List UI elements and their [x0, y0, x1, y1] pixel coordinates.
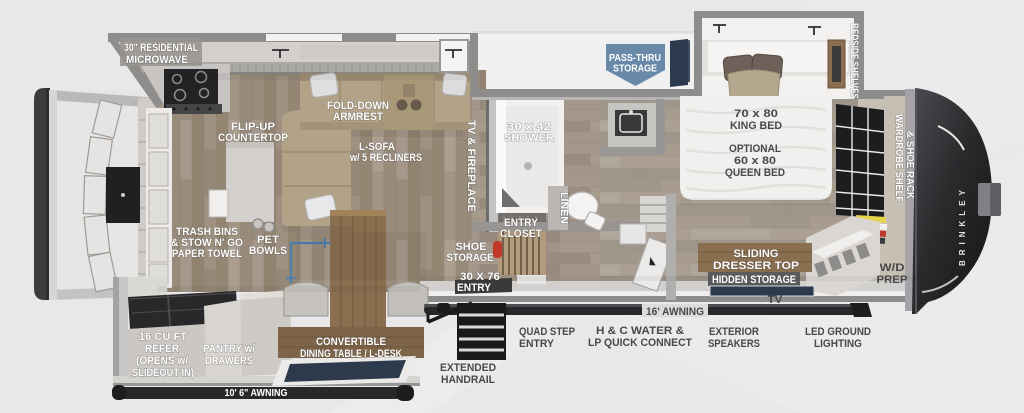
svg-text:CLOSET: CLOSET — [500, 228, 542, 240]
svg-text:10' 6" AWNING: 10' 6" AWNING — [225, 387, 288, 399]
svg-text:EXTERIOR: EXTERIOR — [709, 326, 759, 338]
svg-text:ENTRY: ENTRY — [519, 338, 555, 350]
svg-text:HANDRAIL: HANDRAIL — [441, 374, 495, 386]
svg-text:60 x 80: 60 x 80 — [734, 155, 776, 167]
svg-text:LP QUICK CONNECT: LP QUICK CONNECT — [588, 337, 692, 349]
svg-text:SLIDING: SLIDING — [734, 248, 779, 260]
svg-text:QUEEN BED: QUEEN BED — [725, 167, 785, 179]
svg-text:DINING TABLE / L-DESK: DINING TABLE / L-DESK — [300, 348, 402, 360]
svg-text:WARDROBE SHELF: WARDROBE SHELF — [893, 114, 904, 202]
svg-text:LINEN: LINEN — [558, 192, 569, 224]
svg-text:SPEAKERS: SPEAKERS — [708, 338, 760, 350]
svg-text:EXTENDED: EXTENDED — [440, 362, 496, 374]
svg-text:DRESSER TOP: DRESSER TOP — [713, 260, 799, 272]
svg-text:LED GROUND: LED GROUND — [805, 326, 871, 338]
svg-text:CONVERTIBLE: CONVERTIBLE — [316, 336, 386, 348]
svg-text:DRAWERS: DRAWERS — [205, 355, 253, 367]
svg-text:SLIDEOUT IN): SLIDEOUT IN) — [132, 367, 194, 379]
svg-text:PANTRY w/: PANTRY w/ — [203, 343, 255, 355]
svg-text:16' AWNING: 16' AWNING — [646, 306, 704, 318]
svg-text:& SHOE RACK: & SHOE RACK — [904, 131, 915, 200]
svg-text:PREP: PREP — [877, 274, 908, 286]
svg-text:ENTRY: ENTRY — [457, 282, 492, 294]
svg-text:w/ 5 RECLINERS: w/ 5 RECLINERS — [349, 152, 422, 164]
svg-text:TV & FIREPLACE: TV & FIREPLACE — [465, 120, 477, 212]
svg-text:BEDSIDE SHELVES: BEDSIDE SHELVES — [848, 23, 860, 99]
svg-text:PAPER TOWEL: PAPER TOWEL — [172, 248, 242, 260]
svg-text:BOWLS: BOWLS — [249, 245, 287, 257]
svg-text:16 CU FT: 16 CU FT — [139, 331, 187, 343]
svg-text:LIGHTING: LIGHTING — [814, 338, 862, 350]
svg-text:ARMREST: ARMREST — [333, 111, 383, 123]
svg-text:QUAD STEP: QUAD STEP — [519, 326, 575, 338]
svg-text:STORAGE: STORAGE — [613, 63, 657, 75]
svg-text:(OPENS w/: (OPENS w/ — [136, 355, 188, 367]
svg-text:REFER: REFER — [145, 343, 179, 355]
svg-text:30" RESIDENTIAL: 30" RESIDENTIAL — [124, 42, 198, 54]
svg-text:BRINKLEY: BRINKLEY — [958, 185, 967, 266]
svg-text:MICROWAVE: MICROWAVE — [126, 54, 188, 66]
svg-text:W/D: W/D — [880, 262, 905, 274]
svg-text:STORAGE: STORAGE — [447, 252, 494, 264]
svg-text:COUNTERTOP: COUNTERTOP — [218, 132, 288, 144]
svg-text:70 x 80: 70 x 80 — [734, 108, 778, 120]
svg-text:H & C WATER &: H & C WATER & — [596, 325, 684, 337]
svg-text:TV: TV — [768, 294, 784, 306]
svg-text:SHOWER: SHOWER — [504, 132, 554, 144]
svg-text:OPTIONAL: OPTIONAL — [729, 143, 781, 155]
svg-text:KING BED: KING BED — [730, 120, 782, 132]
svg-text:HIDDEN STORAGE: HIDDEN STORAGE — [712, 274, 796, 286]
